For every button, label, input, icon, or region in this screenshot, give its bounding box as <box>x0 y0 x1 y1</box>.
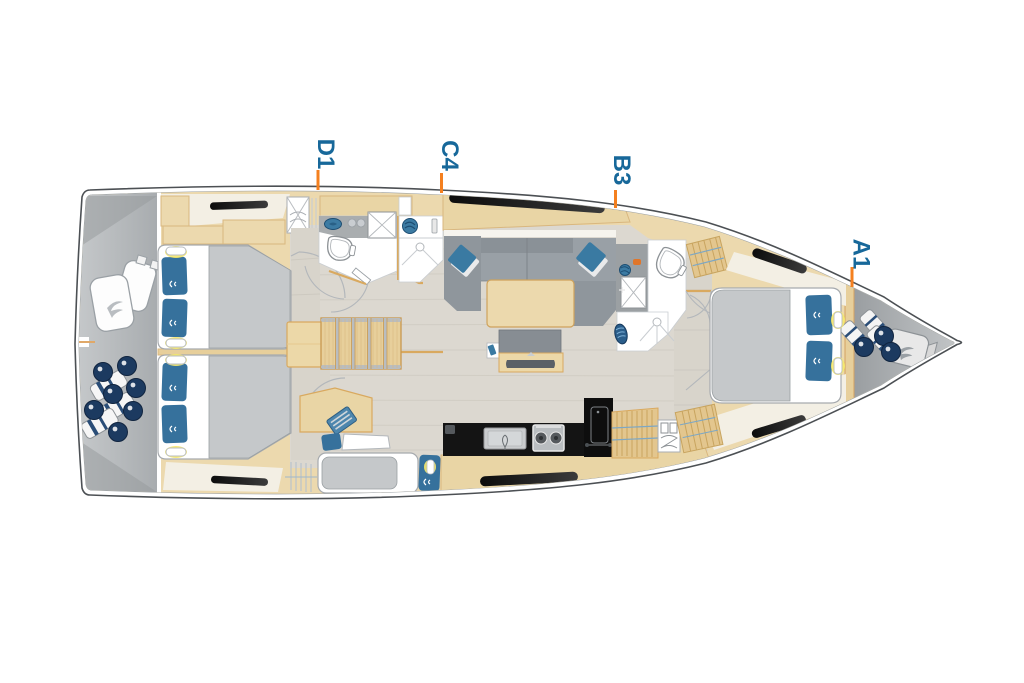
svg-text:B3: B3 <box>608 155 635 186</box>
svg-text:D1: D1 <box>312 139 339 170</box>
svg-text:C4: C4 <box>436 140 463 171</box>
svg-text:A1: A1 <box>848 239 875 270</box>
